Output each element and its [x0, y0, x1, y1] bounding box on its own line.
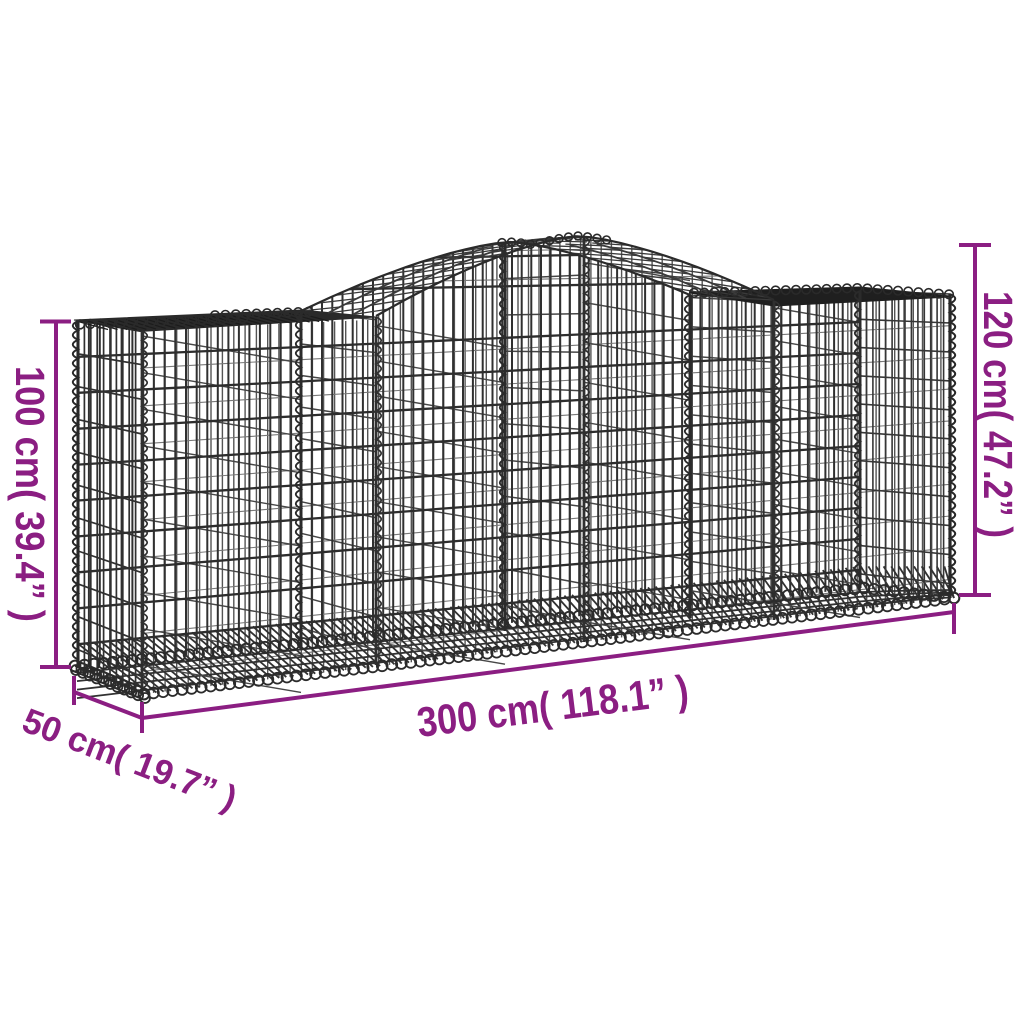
svg-text:120 cm( 47.2” ): 120 cm( 47.2” ) — [975, 291, 1021, 538]
svg-text:100 cm( 39.4” ): 100 cm( 39.4” ) — [7, 366, 53, 622]
